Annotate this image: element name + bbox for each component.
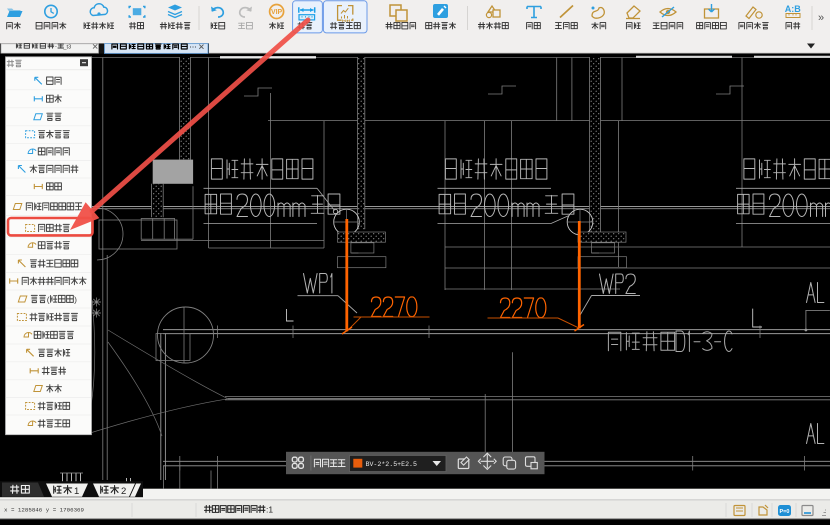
svg-text:»: » [818, 12, 824, 24]
svg-text:-: - [55, 44, 57, 50]
svg-text:1: 1 [74, 486, 79, 497]
svg-text:⋯: ⋯ [190, 45, 197, 52]
svg-text::1: :1 [266, 505, 273, 515]
svg-text:(: ( [47, 295, 50, 305]
svg-text:VIP: VIP [271, 9, 283, 16]
svg-text:2: 2 [121, 486, 126, 497]
svg-text:P=0: P=0 [780, 509, 790, 515]
svg-text:): ) [74, 295, 77, 305]
svg-text:BV-2*2.5+E2.5: BV-2*2.5+E2.5 [366, 461, 417, 468]
svg-text:x = 1285846 y = 1706369: x = 1285846 y = 1706369 [4, 506, 85, 513]
svg-text:_t3: _t3 [63, 44, 72, 50]
svg-text:A:B: A:B [785, 4, 801, 14]
